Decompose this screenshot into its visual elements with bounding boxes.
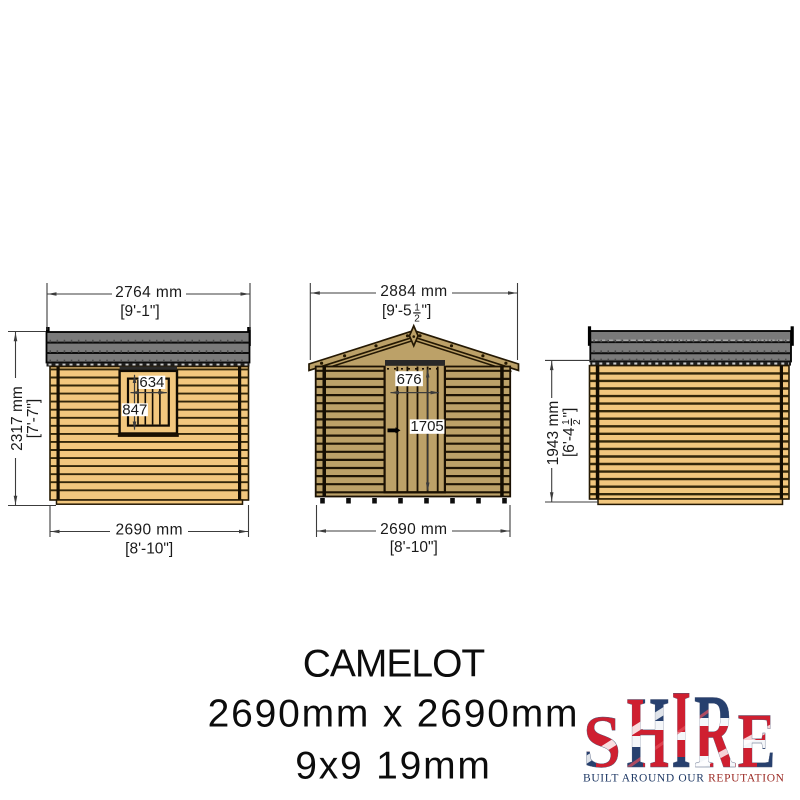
svg-text:[6'-4: [6'-4 (561, 427, 578, 457)
svg-text:[8'-10"]: [8'-10"] (390, 539, 438, 556)
svg-text:[8'-10"]: [8'-10"] (125, 541, 173, 558)
svg-text:634: 634 (139, 374, 164, 391)
svg-text:1: 1 (414, 303, 420, 314)
svg-text:2690mm x 2690mm: 2690mm x 2690mm (208, 693, 580, 736)
svg-text:9x9 19mm: 9x9 19mm (295, 745, 491, 788)
svg-text:2690 mm: 2690 mm (115, 522, 182, 539)
svg-text:1705: 1705 (410, 418, 443, 435)
svg-text:2: 2 (572, 419, 583, 425)
svg-text:1: 1 (561, 419, 572, 425)
svg-text:2884 mm: 2884 mm (380, 283, 447, 300)
svg-text:2690 mm: 2690 mm (380, 521, 447, 538)
svg-text:2: 2 (414, 314, 420, 325)
svg-text:[7'-7"]: [7'-7"] (25, 399, 42, 438)
svg-text:2764 mm: 2764 mm (115, 284, 182, 301)
svg-text:[9'-5: [9'-5 (382, 303, 412, 320)
svg-text:847: 847 (122, 401, 147, 418)
svg-text:"]: "] (561, 408, 578, 418)
svg-text:1943 mm: 1943 mm (545, 401, 562, 466)
svg-text:2317 mm: 2317 mm (9, 386, 26, 451)
svg-text:E: E (738, 697, 776, 784)
svg-text:[9'-1"]: [9'-1"] (120, 303, 159, 320)
svg-text:"]: "] (422, 303, 432, 320)
svg-text:BUILT AROUND OUR REPUTATION: BUILT AROUND OUR REPUTATION (583, 773, 785, 785)
svg-text:CAMELOT: CAMELOT (303, 643, 485, 686)
svg-text:676: 676 (397, 371, 422, 388)
